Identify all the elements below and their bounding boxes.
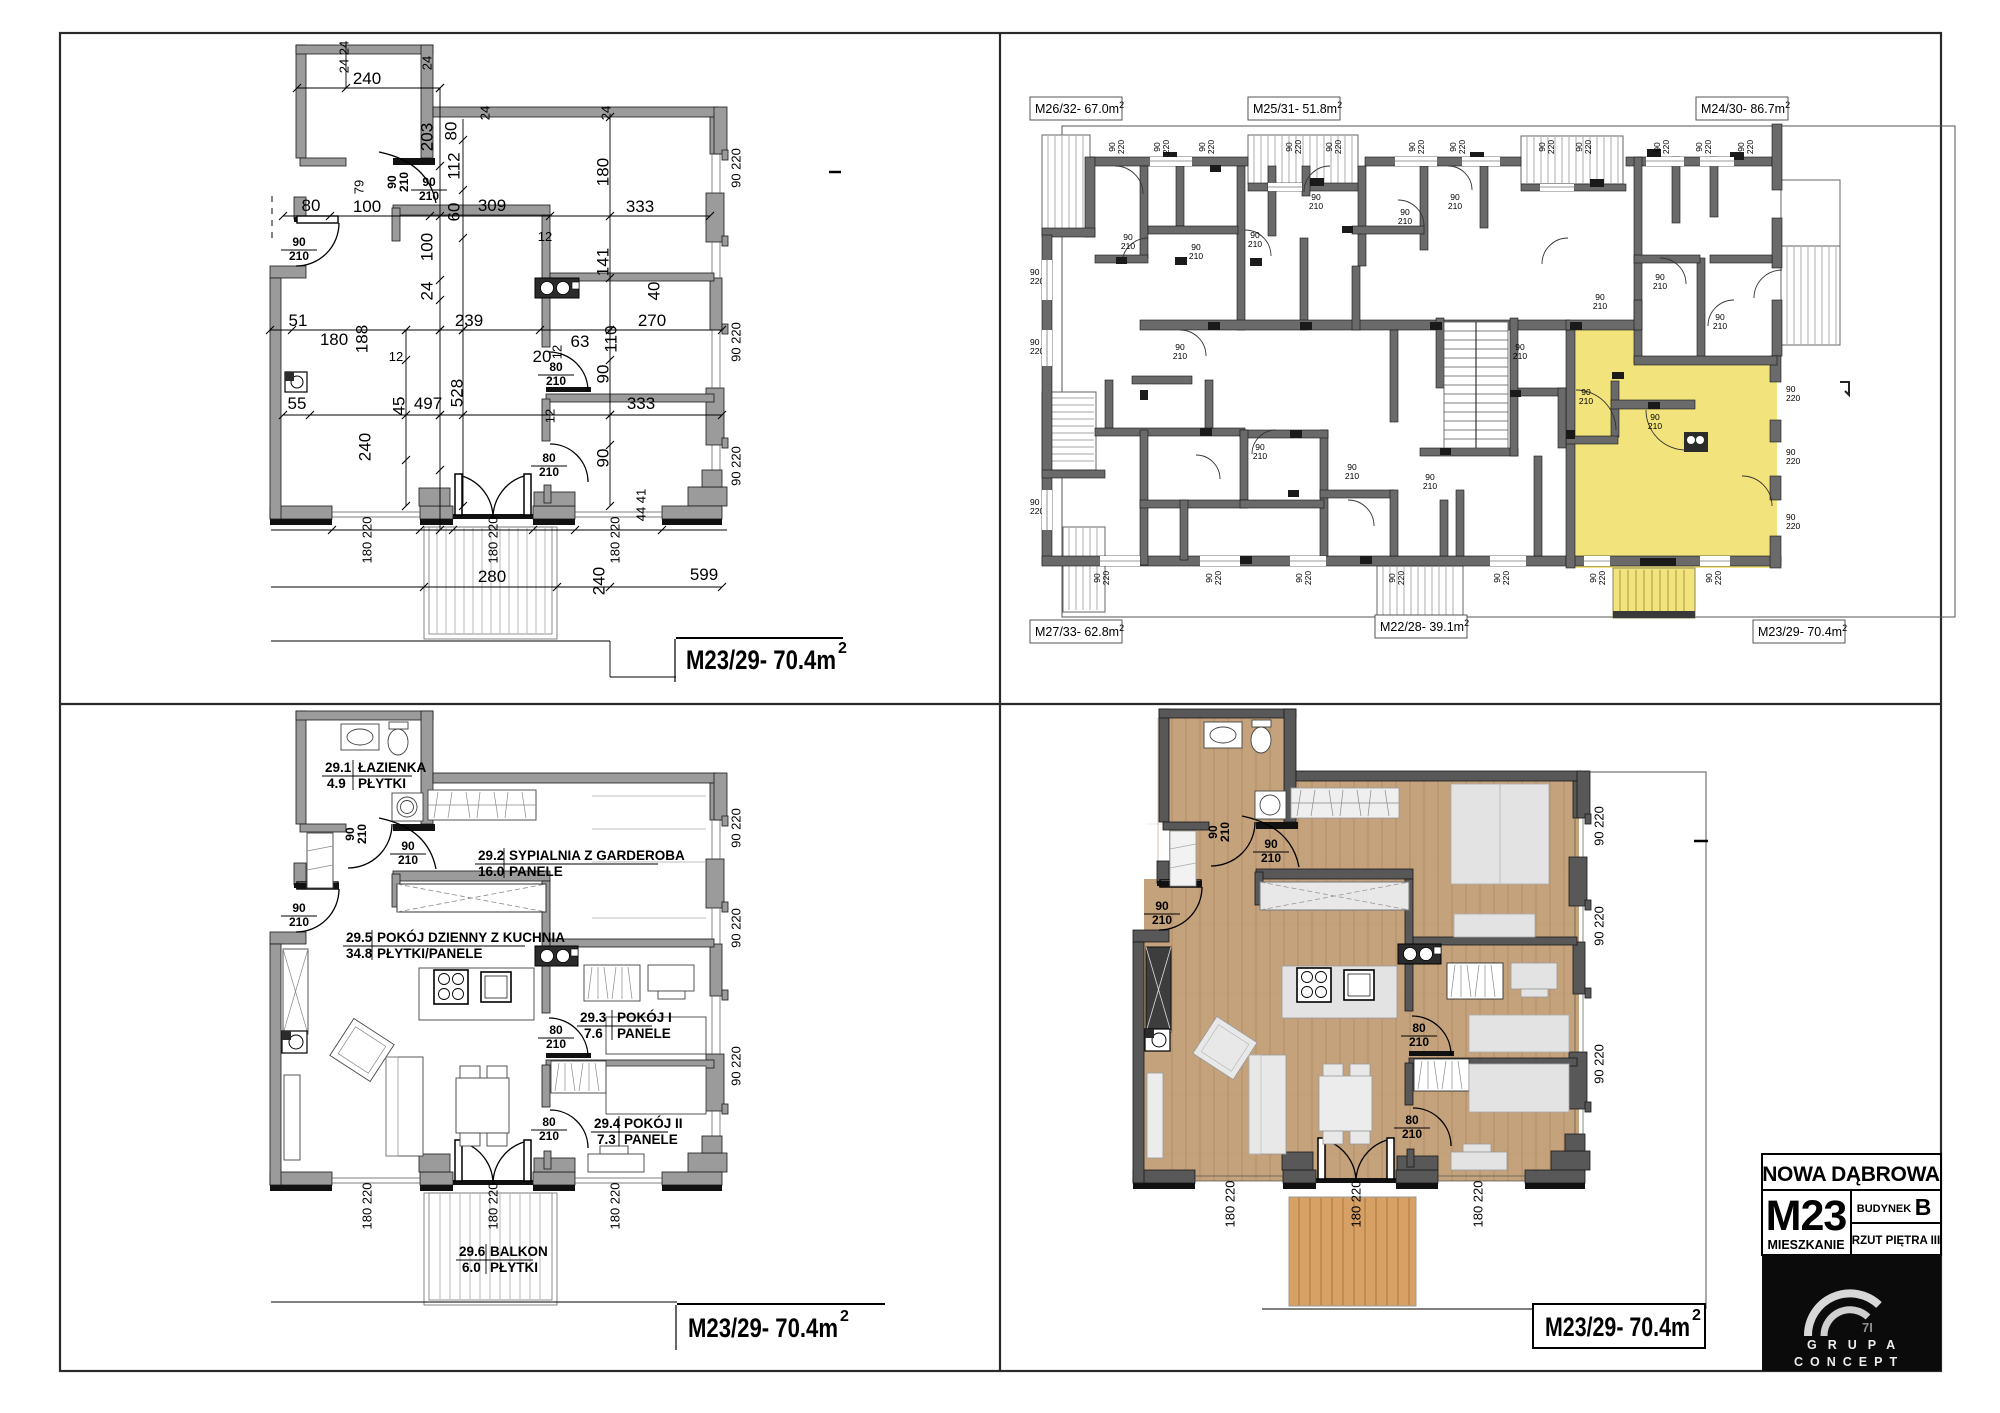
svg-text:45: 45 (389, 397, 408, 416)
svg-text:MIESZKANIE: MIESZKANIE (1767, 1238, 1844, 1252)
svg-text:220: 220 (1161, 140, 1171, 154)
svg-text:PANELE: PANELE (509, 864, 563, 879)
svg-text:239: 239 (455, 311, 483, 330)
svg-text:GRUPA: GRUPA (1807, 1338, 1906, 1352)
svg-text:599: 599 (690, 565, 718, 584)
svg-text:203: 203 (417, 123, 436, 151)
svg-text:280: 280 (478, 567, 506, 586)
svg-text:PANELE: PANELE (617, 1026, 671, 1041)
svg-text:220: 220 (1457, 140, 1467, 154)
svg-text:497: 497 (414, 394, 442, 413)
svg-text:7.3: 7.3 (597, 1132, 616, 1147)
svg-text:210: 210 (1173, 351, 1187, 361)
svg-text:210: 210 (1253, 451, 1267, 461)
svg-text:PŁYTKI: PŁYTKI (490, 1260, 538, 1275)
svg-text:M23/29- 70.4m: M23/29- 70.4m (686, 645, 836, 675)
svg-text:210: 210 (546, 374, 566, 388)
svg-text:PŁYTKI: PŁYTKI (358, 776, 406, 791)
svg-text:210: 210 (1121, 241, 1135, 251)
svg-text:80: 80 (542, 451, 556, 465)
svg-text:309: 309 (478, 196, 506, 215)
svg-text:240: 240 (589, 567, 608, 595)
svg-text:180 220: 180 220 (607, 517, 622, 564)
svg-text:M24/30- 86.7m2: M24/30- 86.7m2 (1701, 100, 1790, 116)
svg-text:210: 210 (1152, 913, 1172, 927)
svg-text:210: 210 (397, 172, 411, 192)
svg-text:55: 55 (288, 394, 307, 413)
svg-text:29.6: 29.6 (459, 1244, 486, 1259)
svg-text:210: 210 (1218, 822, 1232, 842)
svg-text:100: 100 (353, 197, 381, 216)
svg-text:220: 220 (1546, 140, 1556, 154)
svg-text:79: 79 (351, 180, 366, 194)
svg-text:270: 270 (638, 311, 666, 330)
svg-text:6.0: 6.0 (462, 1260, 481, 1275)
svg-text:90 220: 90 220 (728, 322, 743, 362)
svg-text:90: 90 (593, 449, 612, 468)
svg-text:210: 210 (1309, 201, 1323, 211)
svg-text:180 220: 180 220 (1470, 1181, 1485, 1228)
svg-text:7I: 7I (1862, 1320, 1873, 1335)
svg-text:528: 528 (447, 379, 466, 407)
svg-text:112: 112 (444, 152, 463, 179)
svg-text:333: 333 (626, 197, 654, 216)
svg-text:210: 210 (1579, 396, 1593, 406)
svg-text:POKÓJ I: POKÓJ I (617, 1010, 672, 1025)
svg-text:90: 90 (593, 365, 612, 384)
svg-text:220: 220 (1786, 456, 1800, 466)
svg-text:2: 2 (1692, 1307, 1701, 1324)
svg-text:220: 220 (1206, 140, 1216, 154)
svg-text:CONCEPT: CONCEPT (1794, 1355, 1904, 1369)
svg-text:24: 24 (419, 56, 434, 70)
svg-text:220: 220 (1786, 393, 1800, 403)
svg-text:90 220: 90 220 (1591, 1044, 1606, 1084)
svg-text:M23/29- 70.4m: M23/29- 70.4m (1545, 1312, 1690, 1342)
svg-text:BUDYNEK: BUDYNEK (1857, 1203, 1911, 1215)
svg-text:220: 220 (1333, 140, 1343, 154)
svg-text:2: 2 (840, 1308, 849, 1325)
svg-text:40: 40 (644, 282, 663, 301)
svg-text:B: B (1915, 1194, 1932, 1220)
svg-text:24 24: 24 24 (336, 41, 351, 74)
svg-text:M23/29- 70.4m2: M23/29- 70.4m2 (1758, 623, 1847, 639)
svg-text:210: 210 (1402, 1127, 1422, 1141)
svg-text:M22/28- 39.1m2: M22/28- 39.1m2 (1380, 618, 1469, 634)
svg-text:80: 80 (549, 360, 563, 374)
svg-text:210: 210 (289, 915, 309, 929)
svg-text:188: 188 (352, 325, 371, 353)
svg-text:60: 60 (444, 203, 463, 222)
svg-text:210: 210 (1409, 1035, 1429, 1049)
svg-text:63: 63 (571, 332, 590, 351)
svg-text:NOWA DĄBROWA: NOWA DĄBROWA (1762, 1163, 1940, 1186)
svg-text:220: 220 (1713, 571, 1723, 585)
svg-text:29.5: 29.5 (346, 930, 373, 945)
svg-text:90: 90 (401, 839, 415, 853)
svg-text:180 220: 180 220 (1348, 1181, 1363, 1228)
svg-text:29.4: 29.4 (594, 1116, 621, 1131)
svg-text:220: 220 (1213, 571, 1223, 585)
svg-text:220: 220 (1303, 571, 1313, 585)
svg-text:29.2: 29.2 (478, 848, 504, 863)
svg-text:180: 180 (320, 330, 348, 349)
svg-text:220: 220 (1786, 521, 1800, 531)
svg-text:220: 220 (1501, 571, 1511, 585)
svg-text:141: 141 (593, 248, 612, 276)
svg-text:90 220: 90 220 (728, 808, 743, 848)
svg-text:29.1: 29.1 (325, 760, 352, 775)
svg-text:M27/33- 62.8m2: M27/33- 62.8m2 (1035, 623, 1124, 639)
svg-text:180 220: 180 220 (359, 517, 374, 564)
svg-text:180 220: 180 220 (485, 517, 500, 564)
svg-text:90: 90 (422, 175, 436, 189)
svg-text:220: 220 (1583, 140, 1593, 154)
svg-text:220: 220 (1416, 140, 1426, 154)
svg-text:220: 220 (1116, 140, 1126, 154)
svg-text:51: 51 (289, 311, 308, 330)
svg-text:210: 210 (539, 1129, 559, 1143)
svg-text:M23/29- 70.4m: M23/29- 70.4m (688, 1313, 838, 1343)
svg-text:POKÓJ DZIENNY Z KUCHNIA: POKÓJ DZIENNY Z KUCHNIA (377, 930, 565, 945)
svg-text:80: 80 (549, 1023, 563, 1037)
svg-text:M25/31- 51.8m2: M25/31- 51.8m2 (1253, 100, 1342, 116)
svg-text:24: 24 (598, 106, 613, 120)
svg-text:220: 220 (1703, 140, 1713, 154)
svg-text:34.8: 34.8 (346, 946, 373, 961)
svg-text:210: 210 (1398, 216, 1412, 226)
svg-text:210: 210 (1248, 239, 1262, 249)
svg-text:210: 210 (1345, 471, 1359, 481)
svg-text:M26/32- 67.0m2: M26/32- 67.0m2 (1035, 100, 1124, 116)
svg-text:POKÓJ II: POKÓJ II (624, 1116, 683, 1131)
svg-text:210: 210 (419, 189, 439, 203)
svg-text:210: 210 (1653, 281, 1667, 291)
svg-text:90 220: 90 220 (728, 148, 743, 188)
svg-text:M23: M23 (1766, 1192, 1847, 1240)
svg-text:240: 240 (355, 433, 374, 461)
svg-text:90 220: 90 220 (1591, 906, 1606, 946)
svg-text:210: 210 (1448, 201, 1462, 211)
svg-text:BALKON: BALKON (490, 1244, 548, 1259)
svg-text:240: 240 (353, 69, 381, 88)
svg-text:PŁYTKI/PANELE: PŁYTKI/PANELE (377, 946, 483, 961)
svg-text:ŁAZIENKA: ŁAZIENKA (358, 760, 426, 775)
svg-text:220: 220 (1745, 140, 1755, 154)
svg-text:7.6: 7.6 (584, 1026, 603, 1041)
svg-text:90: 90 (292, 235, 306, 249)
svg-text:220: 220 (1597, 571, 1607, 585)
svg-text:16.0: 16.0 (478, 864, 504, 879)
svg-text:210: 210 (1593, 301, 1607, 311)
svg-text:12: 12 (542, 409, 557, 423)
svg-text:220: 220 (1661, 140, 1671, 154)
svg-text:180 220: 180 220 (485, 1183, 500, 1230)
svg-text:12: 12 (549, 345, 564, 359)
svg-text:RZUT PIĘTRA III: RZUT PIĘTRA III (1852, 1235, 1940, 1247)
svg-text:2: 2 (838, 640, 847, 657)
svg-text:210: 210 (1648, 421, 1662, 431)
svg-text:PANELE: PANELE (624, 1132, 678, 1147)
svg-text:220: 220 (1293, 140, 1303, 154)
svg-text:180 220: 180 220 (1222, 1181, 1237, 1228)
svg-text:90: 90 (292, 901, 306, 915)
svg-text:210: 210 (1261, 851, 1281, 865)
svg-text:180 220: 180 220 (359, 1183, 374, 1230)
svg-text:210: 210 (1423, 481, 1437, 491)
svg-text:29.3: 29.3 (580, 1010, 607, 1025)
svg-text:80: 80 (441, 122, 460, 141)
svg-text:90 220: 90 220 (728, 446, 743, 486)
svg-text:180: 180 (593, 158, 612, 186)
svg-text:90 220: 90 220 (728, 1046, 743, 1086)
svg-text:4.9: 4.9 (327, 776, 346, 791)
svg-text:80: 80 (542, 1115, 556, 1129)
svg-text:12: 12 (389, 349, 403, 364)
svg-text:90 220: 90 220 (1591, 806, 1606, 846)
svg-text:220: 220 (1396, 571, 1406, 585)
svg-text:110: 110 (601, 325, 620, 352)
svg-text:210: 210 (355, 824, 369, 844)
svg-text:210: 210 (546, 1037, 566, 1051)
svg-text:90 220: 90 220 (728, 908, 743, 948)
svg-text:210: 210 (289, 249, 309, 263)
svg-text:90: 90 (1264, 837, 1278, 851)
svg-text:44 41: 44 41 (633, 489, 648, 522)
svg-text:180 220: 180 220 (607, 1183, 622, 1230)
svg-text:12: 12 (538, 229, 552, 244)
svg-text:80: 80 (1412, 1021, 1426, 1035)
svg-text:24: 24 (477, 106, 492, 120)
svg-text:210: 210 (1189, 251, 1203, 261)
svg-text:80: 80 (1405, 1113, 1419, 1127)
svg-text:210: 210 (539, 465, 559, 479)
svg-text:100: 100 (417, 233, 436, 261)
svg-text:SYPIALNIA Z GARDEROBA: SYPIALNIA Z GARDEROBA (509, 848, 685, 863)
svg-text:220: 220 (1101, 571, 1111, 585)
svg-text:333: 333 (627, 394, 655, 413)
svg-text:90: 90 (1155, 899, 1169, 913)
svg-text:210: 210 (1713, 321, 1727, 331)
svg-text:80: 80 (302, 196, 321, 215)
svg-text:210: 210 (398, 853, 418, 867)
svg-text:210: 210 (1513, 351, 1527, 361)
svg-text:24: 24 (417, 282, 436, 301)
